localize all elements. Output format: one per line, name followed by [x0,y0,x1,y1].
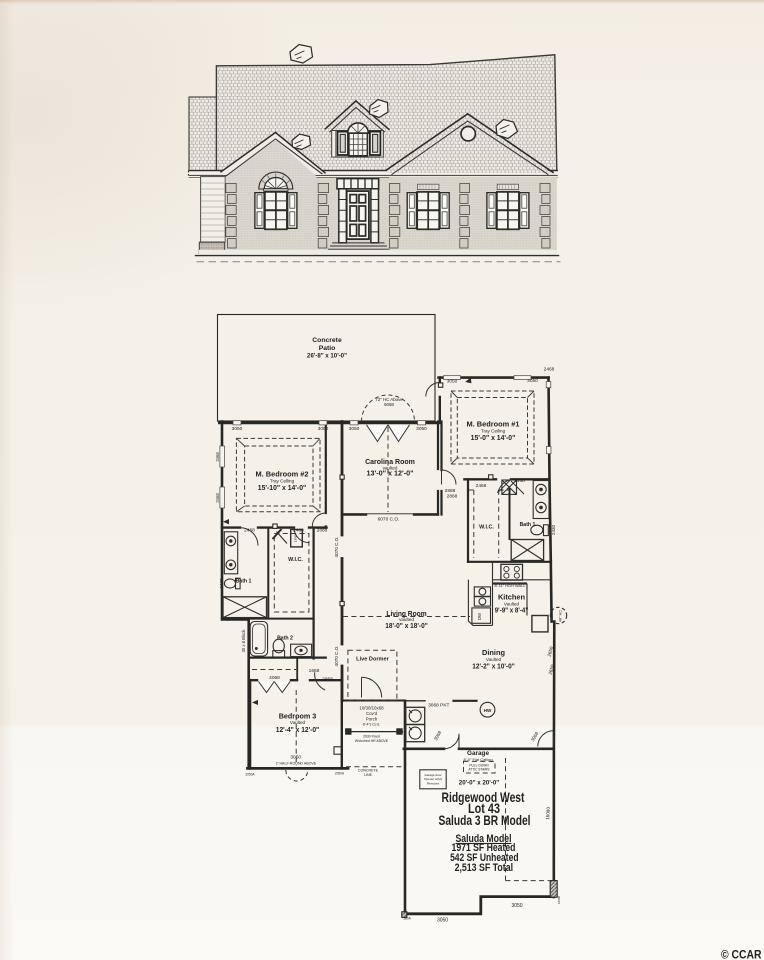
svg-text:6068: 6068 [384,402,394,407]
svg-text:48" HC: 48" HC [559,610,563,622]
svg-text:W.I.C.: W.I.C. [479,525,494,531]
svg-text:Concrete: Concrete [312,337,342,344]
svg-text:3050: 3050 [511,903,522,909]
svg-text:Vaulted: Vaulted [504,602,520,607]
svg-text:Dining: Dining [482,648,505,657]
svg-text:2468: 2468 [215,493,220,503]
svg-text:Tray Celling: Tray Celling [270,479,295,484]
svg-text:Kitchen: Kitchen [498,592,526,601]
svg-text:3068: 3068 [433,730,443,742]
svg-text:3050: 3050 [527,378,538,384]
svg-text:CONCRETE: CONCRETE [358,769,379,773]
svg-text:Patio: Patio [319,345,336,352]
svg-text:2430: 2430 [551,524,556,535]
svg-text:2888: 2888 [445,488,456,494]
svg-text:6070 C.O.: 6070 C.O. [378,517,400,523]
svg-text:W/Arched HR ABOVE: W/Arched HR ABOVE [355,739,389,743]
svg-text:Bath 2: Bath 2 [277,636,293,642]
svg-text:Remotes: Remotes [427,781,440,785]
svg-text:15'-0" x 14'-0": 15'-0" x 14'-0" [471,433,516,442]
svg-text:18'-0" x 18'-0": 18'-0" x 18'-0" [385,622,428,629]
svg-text:16080: 16080 [545,806,551,819]
svg-text:4070 C.O.: 4070 C.O. [334,646,339,667]
svg-text:© CCAR: © CCAR [721,949,762,960]
svg-text:4068: 4068 [269,675,280,681]
svg-text:9'-9" x 8'-4": 9'-9" x 8'-4" [495,607,529,615]
svg-text:Linen: Linen [294,534,298,542]
svg-text:Saluda 3 BR Model: Saluda 3 BR Model [439,812,531,828]
svg-text:2050A: 2050A [245,773,255,777]
svg-text:Porch: Porch [366,717,378,722]
svg-text:10/30/10x68: 10/30/10x68 [359,706,384,711]
svg-text:ATTIC STAIRS: ATTIC STAIRS [468,768,489,772]
svg-text:Bath 1: Bath 1 [236,578,252,584]
svg-text:4070 C.O.: 4070 C.O. [334,537,339,558]
svg-text:2468: 2468 [293,527,304,533]
svg-text:16080: 16080 [557,895,561,904]
svg-text:vaulted: vaulted [383,465,398,470]
svg-text:W.I.C.: W.I.C. [288,557,303,563]
svg-text:Cov'd: Cov'd [366,711,378,716]
svg-text:20'-0" x 20'-0": 20'-0" x 20'-0" [459,780,500,787]
svg-text:8'-4"s CLG.: 8'-4"s CLG. [363,722,380,726]
svg-text:3050: 3050 [437,917,448,923]
svg-text:LINE: LINE [364,773,373,777]
svg-text:Tray Ceiling: Tray Ceiling [481,429,506,434]
svg-text:M. Bedroom #1: M. Bedroom #1 [467,420,520,429]
svg-text:12'-2" x 10'-0": 12'-2" x 10'-0" [472,663,515,670]
svg-text:3050: 3050 [290,755,301,761]
svg-text:Vaulted: Vaulted [486,657,502,662]
svg-text:3068: 3068 [530,731,540,743]
svg-text:2468: 2468 [244,527,255,533]
svg-text:Vaulted: Vaulted [290,720,306,725]
svg-text:Live Dormer: Live Dormer [356,657,389,663]
svg-text:Bath 1: Bath 1 [520,522,536,528]
svg-text:3050: 3050 [447,379,458,385]
svg-text:26'-8" x 10'-0": 26'-8" x 10'-0" [307,352,347,359]
svg-text:2,513 SF Total: 2,513 SF Total [455,862,514,874]
svg-text:30 x 8 Block: 30 x 8 Block [241,629,246,653]
svg-text:8'-11" HGH WALL: 8'-11" HGH WALL [495,584,526,588]
svg-text:2868: 2868 [447,494,458,500]
svg-text:HW: HW [484,708,492,713]
svg-text:2468: 2468 [215,452,220,462]
svg-text:vaulted: vaulted [399,617,414,622]
svg-text:8'-0" Flat Ceiling: 8'-0" Flat Ceiling [463,757,492,762]
svg-text:DW: DW [477,612,482,620]
svg-text:3050: 3050 [416,426,427,432]
svg-text:3050: 3050 [349,426,360,432]
svg-text:2468: 2468 [514,478,525,484]
svg-text:2050A: 2050A [335,772,345,776]
svg-text:3068 PKT: 3068 PKT [428,703,449,709]
svg-text:1668: 1668 [309,668,320,674]
svg-text:2430: 2430 [219,578,224,589]
svg-text:2888: 2888 [317,527,328,533]
svg-text:15'-10" x 14'-0": 15'-10" x 14'-0" [258,483,306,492]
svg-text:3050: 3050 [232,426,243,432]
svg-text:2468: 2468 [476,483,487,489]
svg-text:2868: 2868 [322,676,333,682]
svg-text:2' HALF-ROUND ABOVE: 2' HALF-ROUND ABOVE [276,761,317,765]
svg-text:12'-4" x 12'-0": 12'-4" x 12'-0" [276,727,319,734]
svg-text:380A: 380A [403,917,411,921]
svg-text:M. Bedroom #2: M. Bedroom #2 [256,470,309,479]
svg-text:2468: 2468 [544,367,555,373]
svg-text:3050: 3050 [318,426,329,432]
